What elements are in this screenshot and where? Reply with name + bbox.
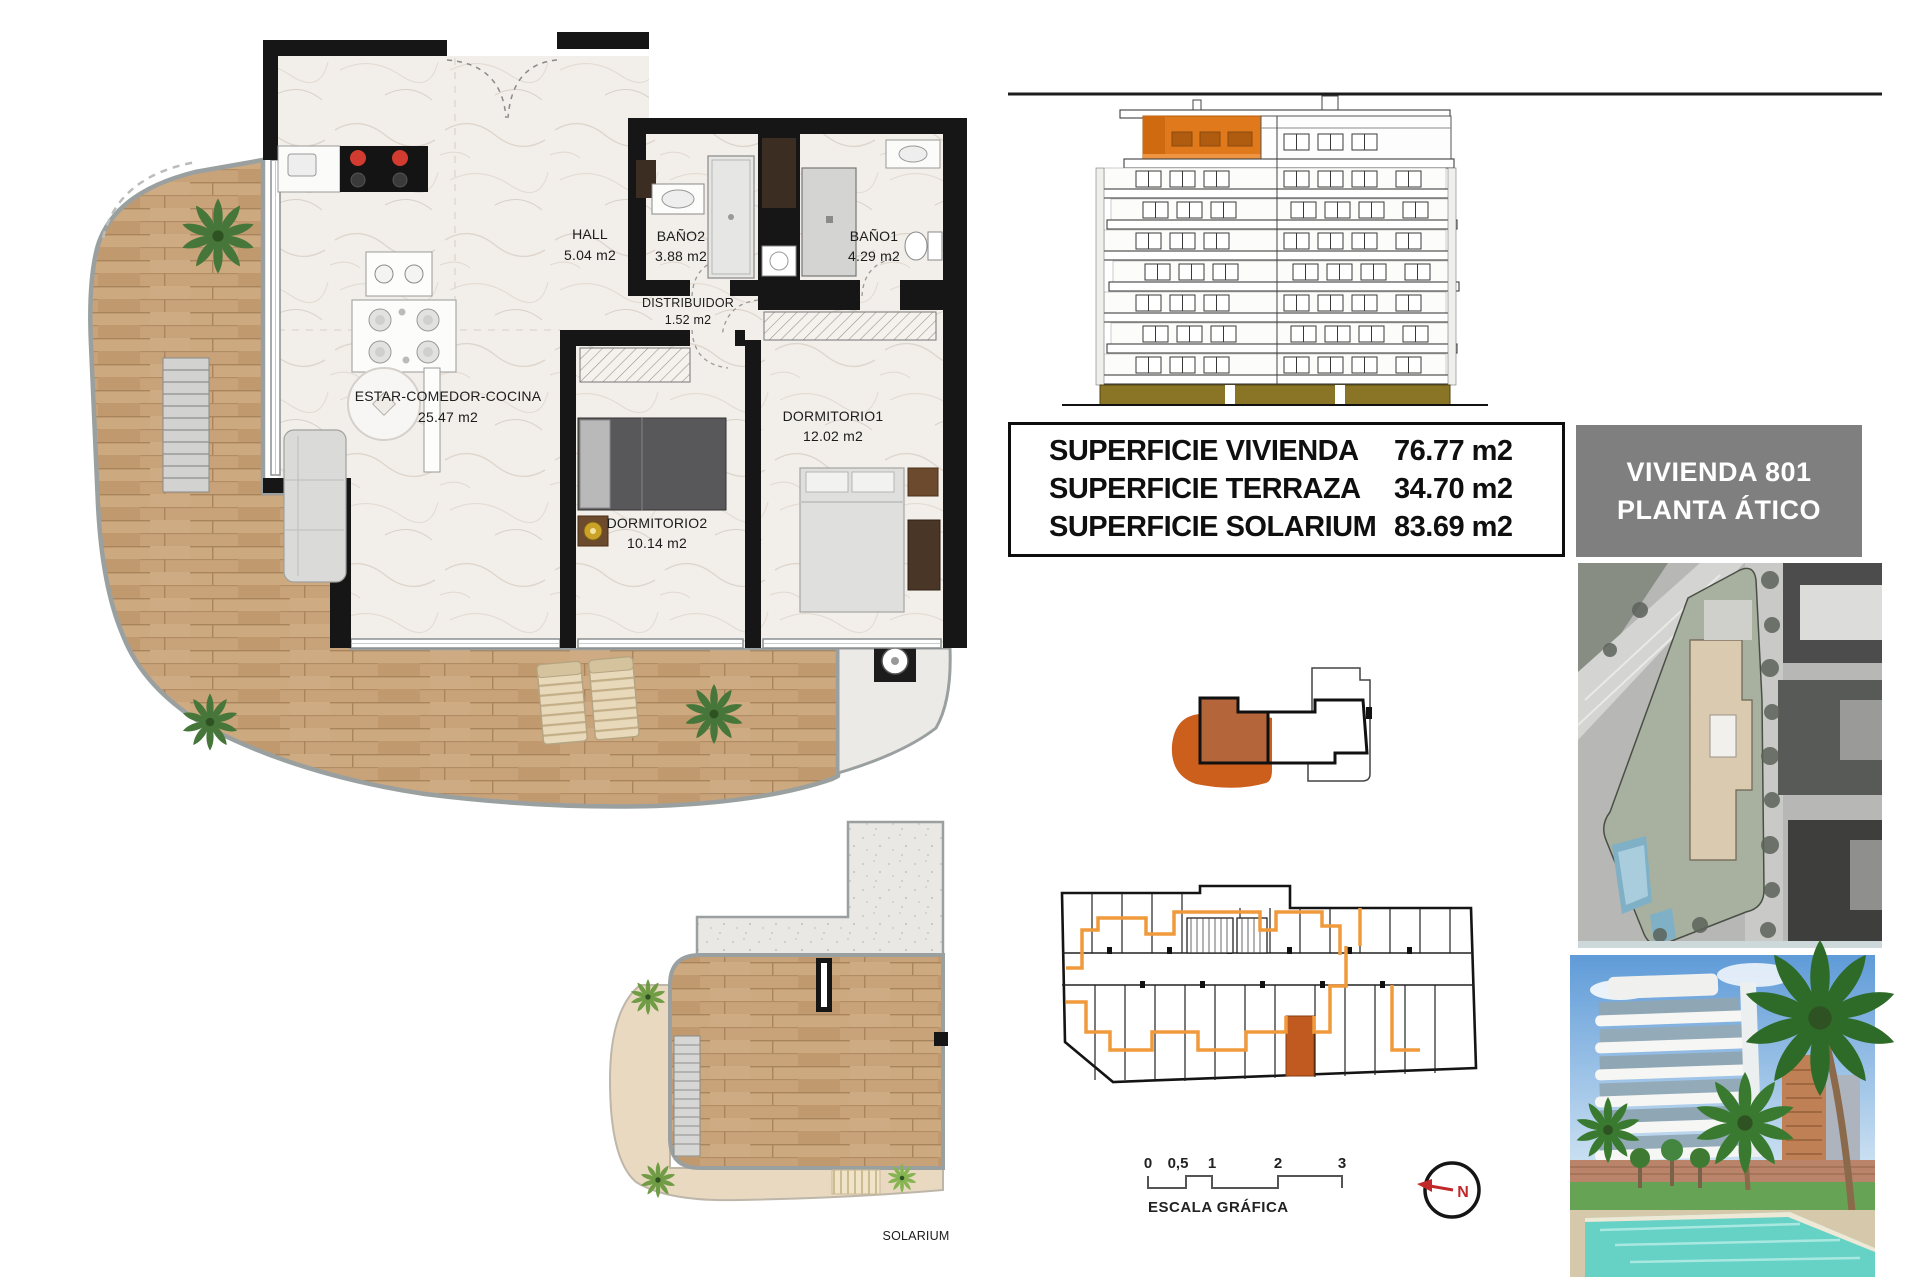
- elevation-base: [1100, 385, 1450, 405]
- building-elevation: [1062, 96, 1488, 405]
- surface-value: 34.70 m2: [1394, 473, 1513, 506]
- room-area-bano1: 4.29 m2: [848, 248, 900, 264]
- stair-core: [1187, 918, 1267, 953]
- room-area-estar: 25.47 m2: [418, 409, 478, 425]
- solarium-access: [934, 1032, 948, 1046]
- room-label-estar: ESTAR-COMEDOR-COCINA: [355, 388, 542, 404]
- room-area-dormitorio2: 10.14 m2: [627, 535, 687, 551]
- surface-value: 76.77 m2: [1394, 435, 1513, 468]
- scale-tick: 2: [1274, 1155, 1282, 1172]
- solarium-skylight: [816, 958, 832, 1012]
- keyplan-unit-highlight: [1200, 698, 1268, 763]
- wardrobe-dormitorio1: [764, 312, 936, 340]
- scale-tick: 1: [1208, 1155, 1216, 1172]
- plan-drawings: HALL 5.04 m2 BAÑO2 3.88 m2 BAÑO1 4.29 m2…: [0, 0, 1920, 1280]
- site-plan-image: [1578, 563, 1882, 948]
- table-row: SUPERFICIE SOLARIUM 83.69 m2: [1049, 509, 1562, 547]
- room-area-bano2: 3.88 m2: [655, 248, 707, 264]
- surface-summary-table: SUPERFICIE VIVIENDA 76.77 m2 SUPERFICIE …: [1008, 422, 1565, 557]
- surface-label: SUPERFICIE SOLARIUM: [1049, 511, 1394, 544]
- solarium-deck: [670, 955, 943, 1168]
- bed-dormitorio1: [800, 468, 940, 612]
- wardrobe-dormitorio2: [580, 348, 690, 382]
- level-keyplan: [1062, 886, 1476, 1082]
- north-compass: N: [1417, 1163, 1479, 1217]
- sofa: [284, 430, 346, 582]
- table-row: SUPERFICIE VIVIENDA 76.77 m2: [1049, 433, 1562, 471]
- scale-tick: 3: [1338, 1155, 1346, 1172]
- scale-tick: 0,5: [1168, 1155, 1189, 1172]
- apartment-floorplan: HALL 5.04 m2 BAÑO2 3.88 m2 BAÑO1 4.29 m2…: [90, 32, 967, 807]
- washer-icon: [762, 246, 796, 276]
- plan-sheet: HALL 5.04 m2 BAÑO2 3.88 m2 BAÑO1 4.29 m2…: [0, 0, 1920, 1280]
- room-label-dormitorio2: DORMITORIO2: [607, 515, 708, 531]
- unit-keyplan: [1172, 668, 1372, 788]
- dining-table: [352, 300, 456, 372]
- room-area-dormitorio1: 12.02 m2: [803, 428, 863, 444]
- building-render-image: [1570, 940, 1897, 1277]
- solarium-stone-area: [697, 822, 943, 955]
- room-label-distribuidor: DISTRIBUIDOR: [642, 296, 734, 310]
- rug: [348, 368, 420, 440]
- room-label-dormitorio1: DORMITORIO1: [783, 408, 884, 424]
- room-area-distribuidor: 1.52 m2: [665, 313, 712, 327]
- surface-label: SUPERFICIE VIVIENDA: [1049, 435, 1394, 468]
- surface-value: 83.69 m2: [1394, 511, 1513, 544]
- table-row: SUPERFICIE TERRAZA 34.70 m2: [1049, 471, 1562, 509]
- surface-label: SUPERFICIE TERRAZA: [1049, 473, 1394, 506]
- north-label: N: [1457, 1184, 1469, 1201]
- room-label-bano1: BAÑO1: [850, 228, 898, 244]
- terrace-stairs: [163, 358, 209, 492]
- solarium-mat: [832, 1170, 880, 1194]
- room-label-hall: HALL: [572, 226, 608, 242]
- room-area-hall: 5.04 m2: [564, 247, 616, 263]
- storage-highlight: [1286, 1016, 1314, 1076]
- solarium-stairs: [674, 1036, 700, 1156]
- scale-bar-label: ESCALA GRÁFICA: [1148, 1199, 1289, 1216]
- room-label-bano2: BAÑO2: [657, 228, 705, 244]
- solarium-label: SOLARIUM: [883, 1229, 950, 1243]
- scale-bar: 0 0,5 1 2 3 ESCALA GRÁFICA: [1144, 1155, 1346, 1216]
- unit-badge-line1: VIVIENDA 801: [1626, 457, 1811, 488]
- unit-badge-line2: PLANTA ÁTICO: [1617, 495, 1821, 526]
- unit-badge: VIVIENDA 801 PLANTA ÁTICO: [1576, 425, 1862, 557]
- scale-tick: 0: [1144, 1155, 1152, 1172]
- solarium-plan: SOLARIUM: [610, 822, 949, 1243]
